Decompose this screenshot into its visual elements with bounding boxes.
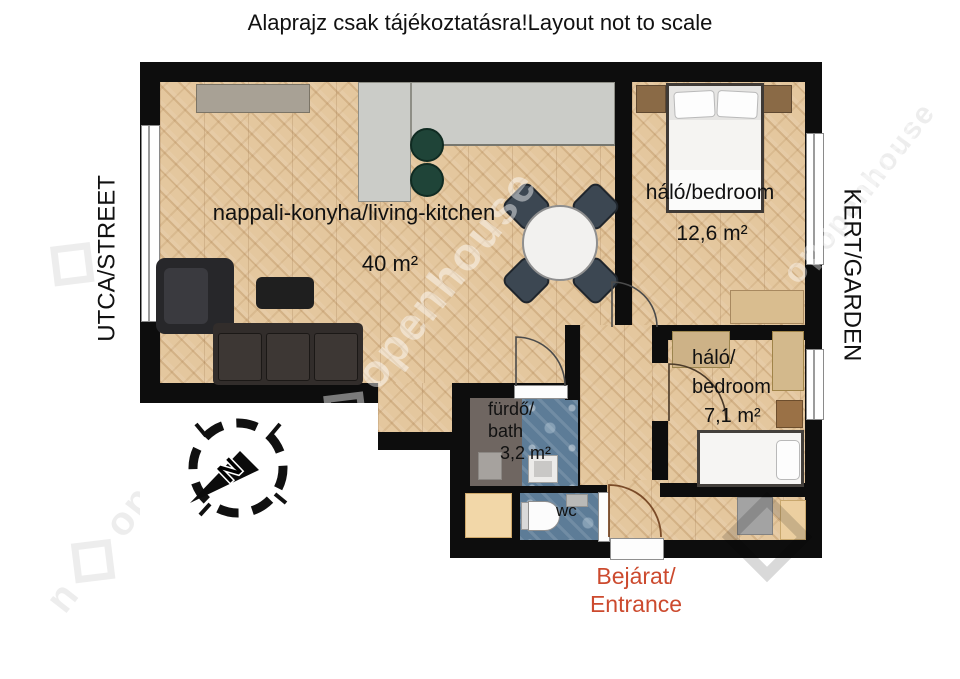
- kitchen-stool: [410, 163, 444, 197]
- dining-table: [522, 205, 598, 281]
- bedroom2-door-opening: [652, 363, 668, 421]
- living-room-label: nappali-konyha/living-kitchen: [193, 200, 515, 226]
- bath-name-line1: fürdő/: [488, 398, 580, 420]
- pillow: [716, 90, 758, 119]
- bedroom1-window: [806, 133, 824, 265]
- plan-title: Alaprajz csak tájékoztatásra!Layout not …: [0, 10, 960, 36]
- entrance-line2: Entrance: [560, 590, 712, 618]
- plan-cutout: [140, 403, 378, 558]
- garden-label: KERT/GARDEN: [837, 188, 866, 358]
- openhouse-logo-icon: [71, 539, 116, 584]
- wc-door: [598, 492, 610, 542]
- bedroom2-label: háló/ bedroom 7,1 m²: [692, 344, 804, 431]
- sofa-cushion: [314, 333, 358, 381]
- bedroom1-label: háló/bedroom: [630, 180, 790, 205]
- armchair-cushion: [164, 268, 208, 324]
- kitchen-stool: [410, 128, 444, 162]
- pillow: [776, 440, 800, 480]
- watermark: openhouse: [807, 96, 943, 257]
- sofa-cushion: [266, 333, 310, 381]
- sofa: [213, 323, 363, 385]
- single-bed: [697, 430, 804, 487]
- bath-area: 3,2 m²: [488, 442, 580, 464]
- bathroom-label: fürdő/ bath 3,2 m²: [488, 398, 580, 464]
- openhouse-logo-icon: [50, 242, 95, 287]
- corridor-floor: [580, 325, 652, 485]
- bedroom2-name-line1: háló/: [692, 344, 804, 373]
- bedroom2-area: 7,1 m²: [692, 402, 804, 431]
- bath-name-line2: bath: [488, 420, 580, 442]
- floor-plan-canvas: Alaprajz csak tájékoztatásra!Layout not …: [0, 0, 960, 679]
- sideboard: [196, 84, 310, 113]
- plan-cutout: [378, 450, 450, 558]
- entrance-label: Bejárat/ Entrance: [560, 562, 712, 618]
- nightstand: [762, 85, 792, 113]
- hall-cabinet: [465, 493, 512, 538]
- desk: [730, 290, 804, 324]
- living-room-area: 40 m²: [330, 251, 450, 277]
- coffee-table: [256, 277, 314, 309]
- nightstand: [636, 85, 666, 113]
- kitchen-counter: [358, 82, 411, 202]
- sofa-cushion: [218, 333, 262, 381]
- entrance-line1: Bejárat/: [560, 562, 712, 590]
- entrance-door: [610, 538, 664, 560]
- bathroom-door: [514, 385, 568, 399]
- wc-label: wc: [556, 501, 577, 521]
- living-room-floor: [378, 383, 452, 432]
- bedroom2-name-line2: bedroom: [692, 373, 804, 402]
- bedroom2-window: [806, 349, 824, 420]
- street-label: UTCA/STREET: [94, 173, 123, 343]
- pillow: [673, 90, 715, 119]
- bedroom1-area: 12,6 m²: [642, 221, 782, 246]
